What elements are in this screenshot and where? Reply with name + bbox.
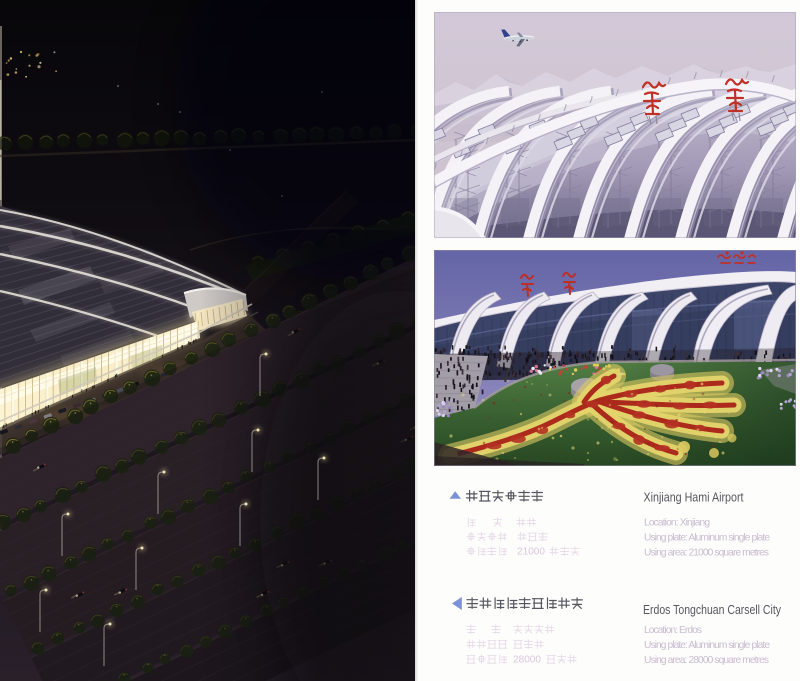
svg-text:Xinjiang Hami Airport: Xinjiang Hami Airport: [644, 490, 744, 505]
svg-text:Erdos Tongchuan Carsell City: Erdos Tongchuan Carsell City: [643, 602, 781, 617]
svg-text:Using area: 21000 square metre: Using area: 21000 square metres: [644, 548, 769, 559]
svg-text:28000: 28000: [513, 654, 541, 666]
svg-text:Location: Xinjiang: Location: Xinjiang: [644, 518, 710, 529]
svg-text:Using area: 28000 square metre: Using area: 28000 square metres: [644, 655, 769, 666]
svg-text:21000: 21000: [517, 546, 545, 558]
svg-text:Location: Erdos: Location: Erdos: [644, 625, 702, 636]
svg-text:Using plate: Aluminum single p: Using plate: Aluminum single plate: [644, 640, 770, 651]
svg-text:Using plate: Aluminum single p: Using plate: Aluminum single plate: [644, 533, 770, 544]
